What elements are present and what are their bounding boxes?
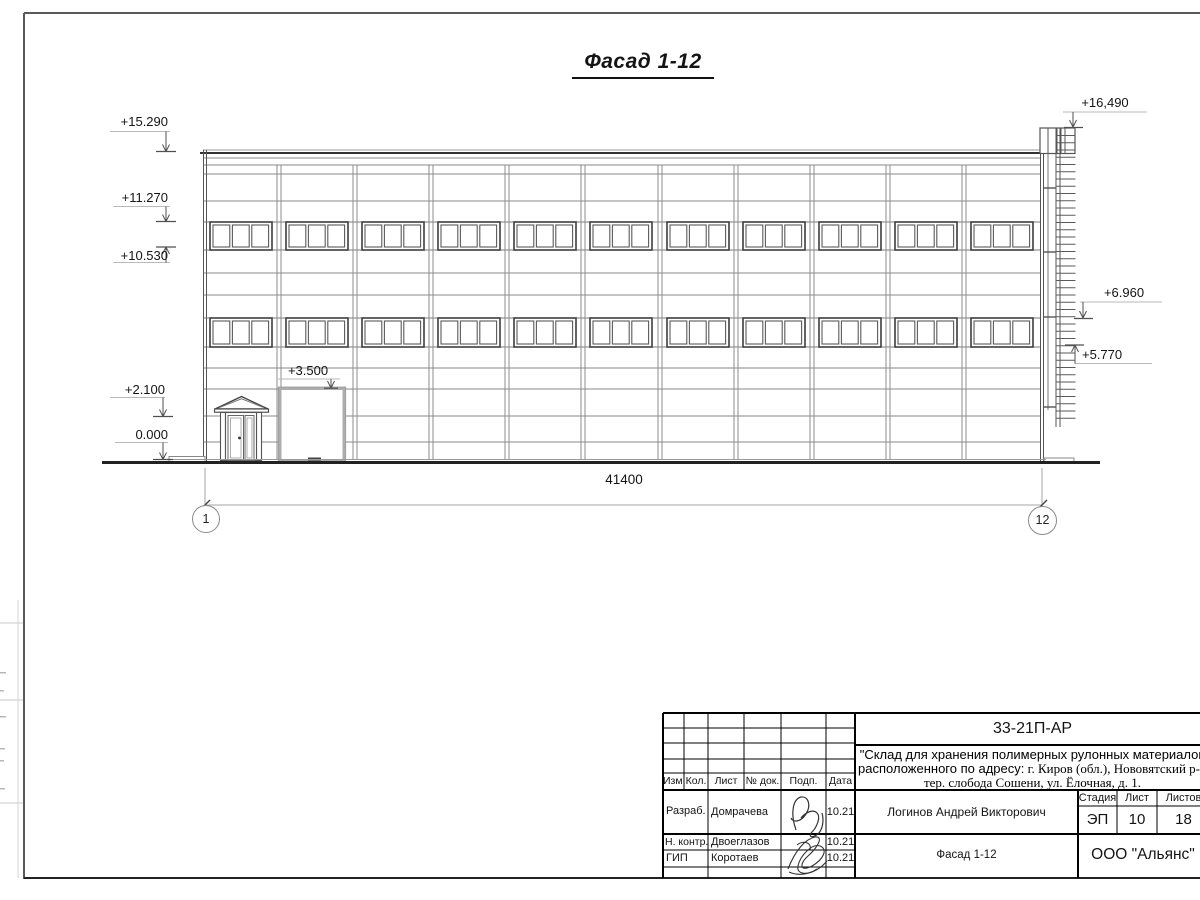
sheet-number: 10 — [1117, 811, 1157, 828]
project-name-line2-address: г. Киров (обл.), Нововятский р-н — [1024, 761, 1200, 776]
elevation-label-5770: +5.770 — [1082, 347, 1122, 362]
elevation-label-16490: +16,490 — [1066, 95, 1144, 110]
stage-label: Стадия — [1078, 792, 1117, 804]
date-control: 10.21 — [826, 836, 855, 848]
col-header-podp: Подп. — [781, 775, 826, 787]
col-header-list: Лист — [708, 775, 744, 787]
drawing-title-cell: Фасад 1-12 — [855, 849, 1078, 861]
elevation-label-0000: 0.000 — [98, 427, 168, 442]
gate-panel — [280, 389, 344, 462]
drawing-sheet: Фасад 1-12 +15.290 +11.270 +10.530 +2.10… — [0, 0, 1200, 900]
sheets-total: 18 — [1157, 811, 1200, 828]
elevation-label-10530: +10.530 — [98, 248, 168, 263]
doc-code: 33-21П-АР — [855, 720, 1200, 738]
axis-bubble-1: 1 — [192, 505, 220, 533]
role-gip: ГИП — [666, 852, 708, 864]
name-control: Двоеглазов — [711, 836, 779, 848]
dimension-total: 41400 — [584, 472, 664, 487]
signatures — [788, 797, 827, 874]
date-gip: 10.21 — [826, 852, 855, 864]
project-name-line3: тер. слобода Сошени, ул. Ёлочная, д. 1. — [855, 775, 1200, 791]
sheet-label: Лист — [1117, 792, 1157, 804]
elevation-label-15290: +15.290 — [98, 114, 168, 129]
sheet-title: Фасад 1-12 — [572, 50, 714, 79]
chief-name: Логинов Андрей Викторович — [855, 805, 1078, 819]
windows-grid — [210, 222, 1033, 347]
door-right-post — [257, 413, 262, 461]
entrance-door — [215, 397, 269, 461]
col-header-izm: Изм. — [663, 775, 684, 787]
stage-value: ЭП — [1078, 811, 1117, 828]
elevation-marks — [110, 112, 1162, 460]
col-header-kol: Кол. — [684, 775, 708, 787]
elevation-label-3500: +3.500 — [276, 363, 340, 378]
sheets-label: Листов — [1157, 792, 1200, 804]
elevation-label-2100: +2.100 — [95, 382, 165, 397]
date-developer: 10.21 — [826, 806, 855, 818]
project-name-line2-plain: расположенного по адресу: — [858, 761, 1024, 776]
role-control: Н. контр. — [665, 836, 709, 848]
door-pediment-base — [215, 409, 269, 412]
name-gip: Коротаев — [711, 852, 779, 864]
col-header-data: Дата — [826, 775, 855, 787]
elevation-label-11270: +11.270 — [98, 190, 168, 205]
door-handle — [238, 437, 241, 440]
gate-door — [278, 387, 345, 462]
company-name: ООО "Альянс" — [1078, 846, 1200, 864]
signature-control-gip — [788, 837, 827, 874]
fire-escape-ladder — [1040, 128, 1076, 427]
name-developer: Домрачева — [711, 806, 779, 818]
project-name-line1: "Склад для хранения полимерных рулонных … — [855, 747, 1200, 762]
col-header-doc: № док. — [744, 775, 781, 787]
door-leaf-narrow — [245, 416, 254, 461]
door-left-post — [221, 413, 226, 461]
elevation-label-6960: +6.960 — [1088, 285, 1160, 300]
role-developer: Разраб. — [666, 805, 708, 817]
axis-bubble-12: 12 — [1028, 506, 1057, 535]
signature-developer — [791, 797, 823, 837]
